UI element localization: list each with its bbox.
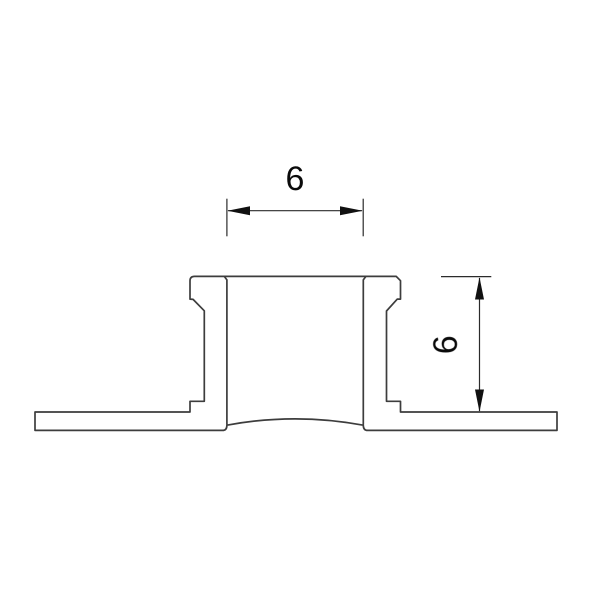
svg-text:6: 6 — [286, 160, 305, 198]
svg-text:6: 6 — [427, 335, 465, 354]
